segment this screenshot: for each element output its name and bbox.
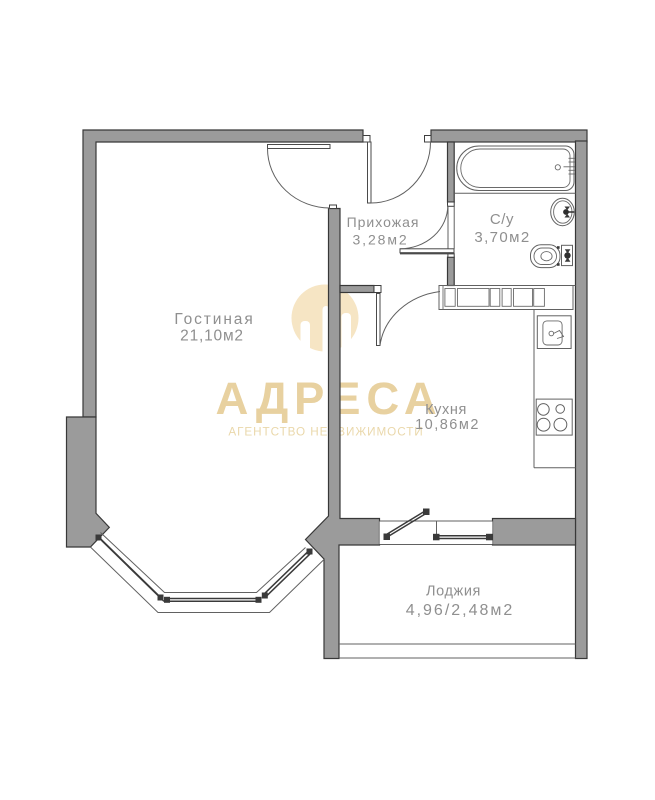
svg-text:3,28м2: 3,28м2 — [352, 232, 408, 248]
svg-text:АГЕНТСТВО НЕДВИЖИМОСТИ: АГЕНТСТВО НЕДВИЖИМОСТИ — [228, 426, 423, 439]
svg-text:3,70м2: 3,70м2 — [474, 229, 530, 246]
svg-text:С/у: С/у — [490, 211, 514, 228]
svg-text:10,86м2: 10,86м2 — [415, 417, 480, 433]
svg-text:Прихожая: Прихожая — [347, 214, 420, 230]
svg-text:Кухня: Кухня — [425, 402, 467, 418]
svg-text:Лоджия: Лоджия — [426, 584, 481, 600]
svg-text:Гостиная: Гостиная — [174, 311, 254, 328]
svg-text:21,10м2: 21,10м2 — [180, 328, 244, 345]
svg-text:4,96/2,48м2: 4,96/2,48м2 — [406, 602, 515, 619]
